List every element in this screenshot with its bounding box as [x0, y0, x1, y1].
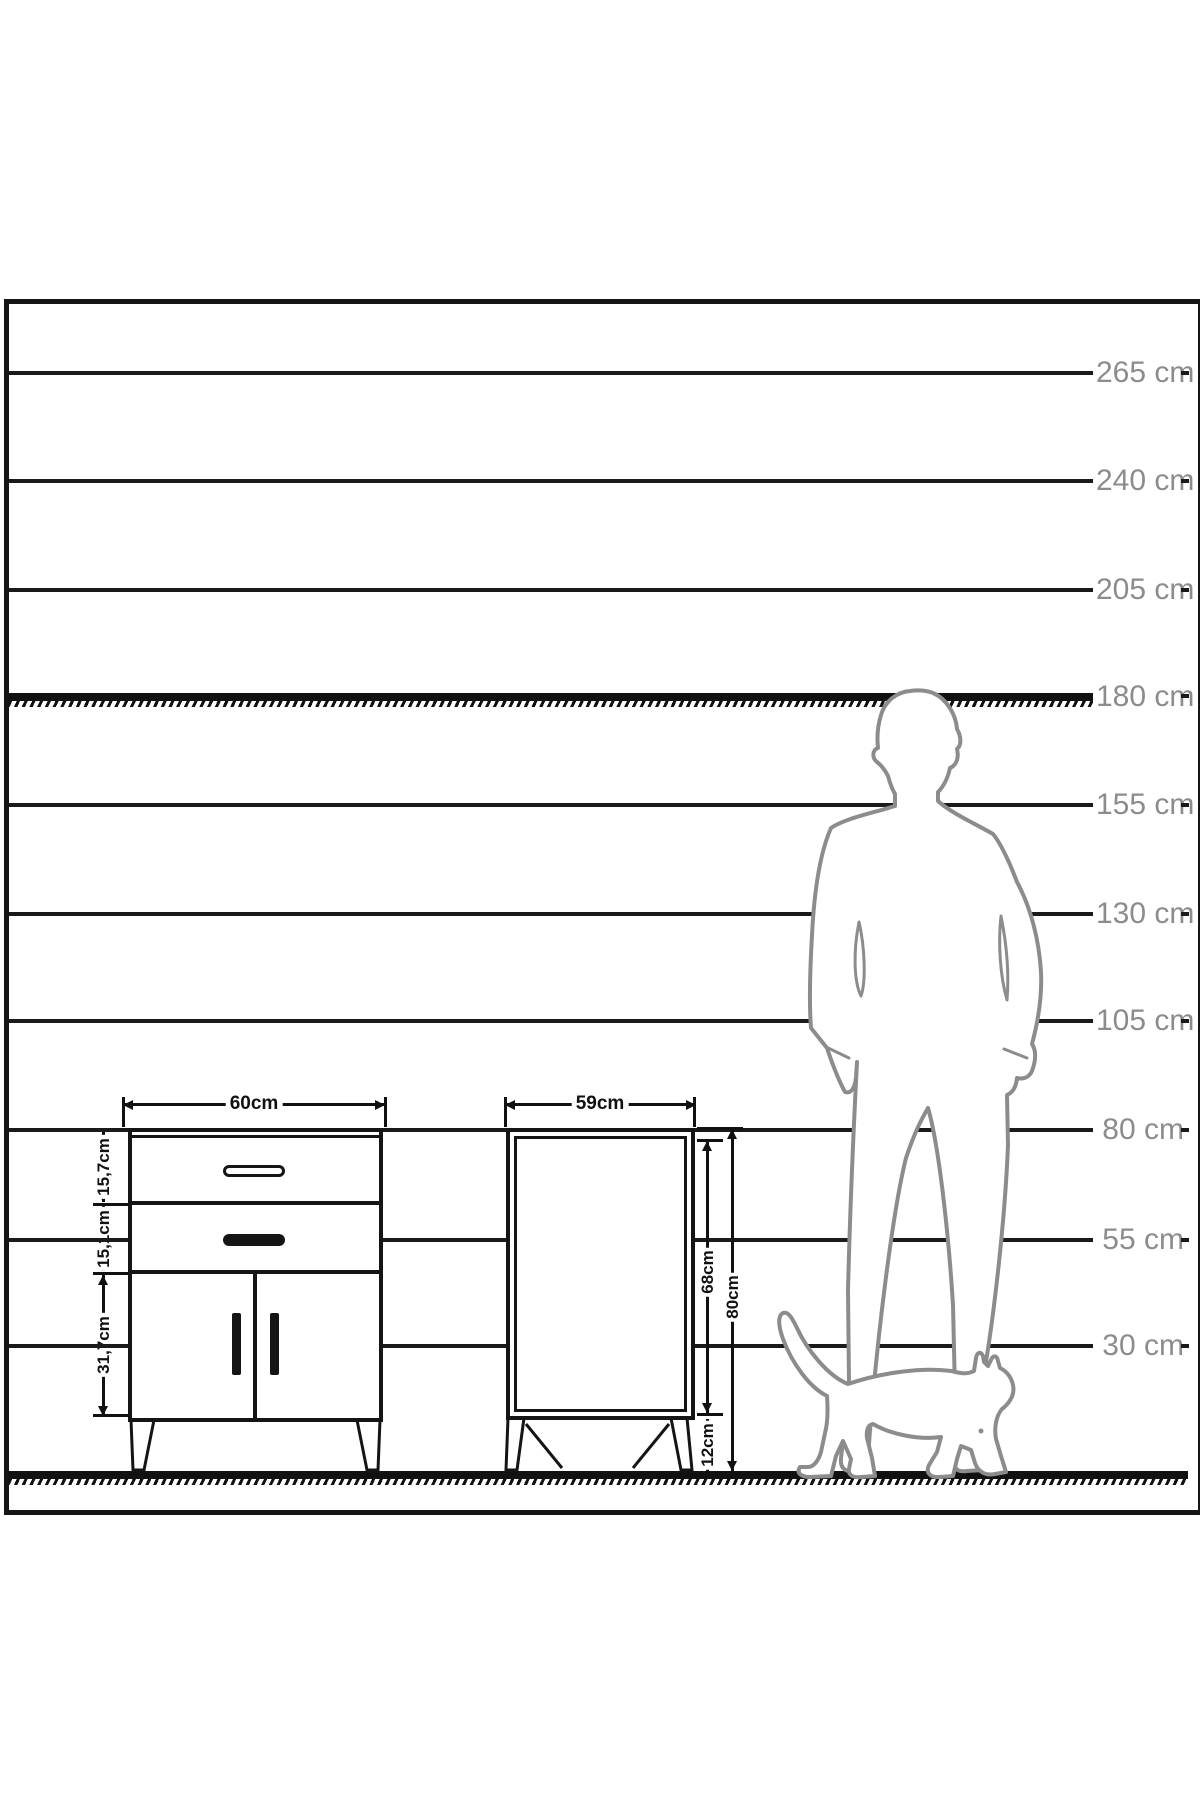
arrow-icon — [702, 1403, 712, 1413]
cabinet-side-view — [506, 1128, 695, 1420]
side-panel-inner-line — [514, 1136, 687, 1412]
cabinet-front-view — [128, 1128, 383, 1422]
arrow-icon — [123, 1100, 133, 1110]
arrow-icon — [505, 1100, 515, 1110]
arrow-icon — [727, 1461, 737, 1471]
drawer-handle — [223, 1234, 285, 1246]
figures-layer — [0, 0, 1200, 1800]
door-handle — [232, 1313, 241, 1375]
side-depth-label: 59cm — [572, 1093, 629, 1115]
extension-tick — [93, 1414, 129, 1417]
man-silhouette — [810, 690, 1041, 1471]
door-divider — [253, 1274, 257, 1418]
front-cabinet-legs — [131, 1420, 380, 1470]
arrow-icon — [686, 1100, 696, 1110]
extension-tick — [697, 1413, 723, 1416]
extension-tick — [93, 1203, 129, 1206]
leg-height-label: 12cm — [698, 1420, 718, 1469]
arrow-icon — [375, 1100, 385, 1110]
arrow-icon — [702, 1141, 712, 1151]
arrow-icon — [727, 1129, 737, 1139]
dimension-drawing: 15,7cm 15,1cm 31,7cm 265 cm 240 cm 205 c… — [0, 0, 1200, 1800]
top-panel-line — [132, 1135, 379, 1138]
total-height-label: 80cm — [723, 1272, 743, 1321]
body-height-label: 68cm — [698, 1247, 718, 1296]
door-handle — [270, 1313, 279, 1375]
drawer-handle — [223, 1165, 285, 1177]
drawer-divider — [132, 1201, 379, 1205]
front-width-label: 60cm — [226, 1093, 283, 1115]
side-cabinet-legs — [506, 1418, 692, 1470]
extension-tick — [93, 1272, 129, 1275]
